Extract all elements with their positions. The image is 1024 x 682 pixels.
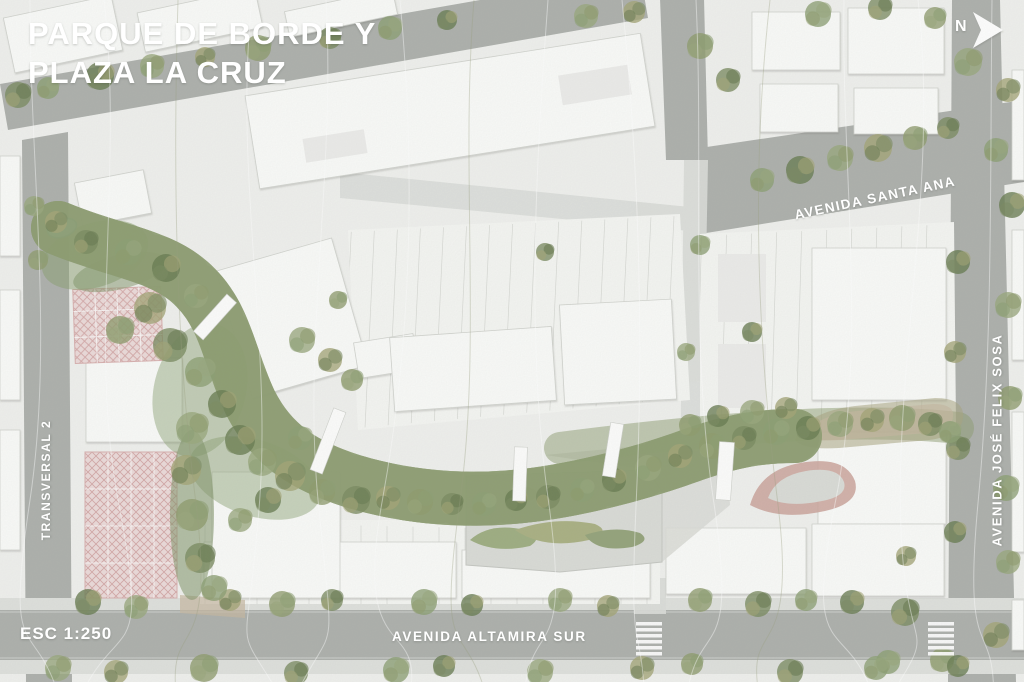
north-letter: N: [955, 18, 967, 36]
street-label-altamira-sur: AVENIDA ALTAMIRA SUR: [392, 629, 587, 644]
site-plan-map: [0, 0, 1024, 682]
street-label-transversal-2: TRANSVERSAL 2: [39, 420, 53, 541]
paper-grain: [0, 0, 1024, 682]
title-line-2: PLAZA LA CRUZ: [28, 53, 376, 92]
page-title: PARQUE DE BORDE Y PLAZA LA CRUZ: [28, 14, 376, 92]
site-plan: PARQUE DE BORDE Y PLAZA LA CRUZ ESC 1:25…: [0, 0, 1024, 682]
title-line-1: PARQUE DE BORDE Y: [28, 14, 376, 53]
scale-label: ESC 1:250: [20, 624, 112, 644]
street-label-jose-felix-sosa: AVENIDA JOSÉ FELIX SOSA: [990, 333, 1005, 546]
